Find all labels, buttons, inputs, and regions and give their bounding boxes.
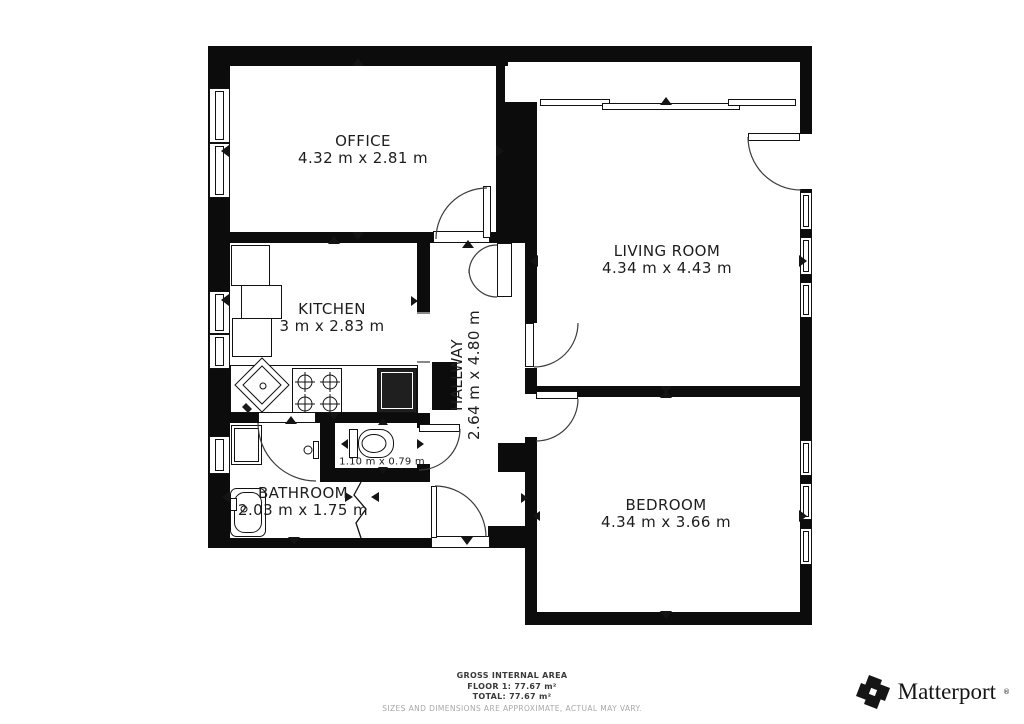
area-summary: GROSS INTERNAL AREA FLOOR 1: 77.67 m² TO… <box>382 671 642 714</box>
room-dimensions: 2.03 m x 1.75 m <box>238 502 368 519</box>
washer-icon <box>232 426 262 465</box>
closet-door-arc <box>469 269 497 297</box>
room-label-living-room: LIVING ROOM 4.34 m x 4.43 m <box>602 243 732 277</box>
bedroom-door-arc <box>536 399 578 441</box>
room-label-kitchen: KITCHEN 3 m x 2.83 m <box>280 301 385 335</box>
room-label-bedroom: BEDROOM 4.34 m x 3.66 m <box>601 497 731 531</box>
room-label-hallway: HALLWAY 2.64 m x 4.80 m <box>449 310 483 440</box>
floorplan-page: OFFICE 4.32 m x 2.81 m LIVING ROOM 4.34 … <box>0 0 1024 724</box>
trademark-symbol: ® <box>1003 688 1010 696</box>
living-door-arc <box>534 323 578 367</box>
total-area-line: TOTAL: 77.67 m² <box>382 692 642 703</box>
balcony-door-arc <box>748 137 801 190</box>
room-name: OFFICE <box>335 132 391 150</box>
room-name: HALLWAY <box>448 339 466 411</box>
room-dimensions: 4.32 m x 2.81 m <box>298 150 428 167</box>
stove-icon <box>293 369 342 415</box>
kitchen-cabinet <box>232 246 270 286</box>
room-dimensions: 2.64 m x 4.80 m <box>466 310 483 440</box>
shower-icon <box>304 442 319 459</box>
room-label-office: OFFICE 4.32 m x 2.81 m <box>298 133 428 167</box>
room-name: KITCHEN <box>298 300 366 318</box>
entry-door-arc <box>435 486 486 537</box>
room-dimensions: 3 m x 2.83 m <box>280 318 385 335</box>
room-dimensions: 4.34 m x 3.66 m <box>601 514 731 531</box>
bathroom-door-arc <box>258 423 316 481</box>
matterport-logo: Matterport ® <box>855 674 1010 710</box>
matterport-logo-icon <box>855 674 891 710</box>
room-name: BEDROOM <box>625 496 706 514</box>
room-label-wc: 1.10 m x 0.79 m <box>339 457 425 468</box>
closet-door-arc <box>469 245 497 273</box>
gross-internal-area-title: GROSS INTERNAL AREA <box>382 671 642 682</box>
toilet-icon <box>350 430 394 458</box>
kitchen-cabinet <box>242 286 282 319</box>
kitchen-cabinet <box>233 319 272 357</box>
floor-area-line: FLOOR 1: 77.67 m² <box>382 682 642 693</box>
room-label-bathroom: BATHROOM 2.03 m x 1.75 m <box>238 485 368 519</box>
room-name: LIVING ROOM <box>614 242 720 260</box>
room-dimensions: 4.34 m x 4.43 m <box>602 260 732 277</box>
matterport-wordmark: Matterport <box>898 679 996 705</box>
room-dimensions: 1.10 m x 0.79 m <box>339 457 425 468</box>
floor-plan-drawing <box>0 0 1024 724</box>
disclaimer-text: SIZES AND DIMENSIONS ARE APPROXIMATE, AC… <box>382 704 642 715</box>
room-name: BATHROOM <box>258 484 348 502</box>
kitchen-appliance <box>378 369 417 413</box>
